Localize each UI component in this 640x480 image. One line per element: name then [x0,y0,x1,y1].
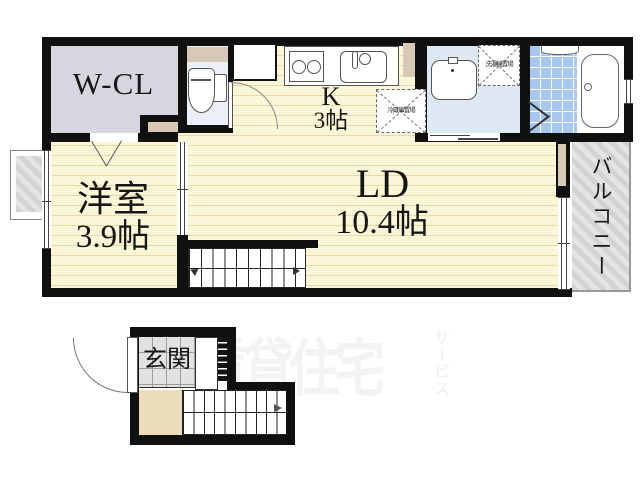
stairs-top-wall [188,240,318,248]
stairs-arrow-right [293,267,300,275]
stairs-dark-run [218,337,227,382]
lower-wall-top [130,327,236,337]
sink-faucet-lever [352,51,358,69]
kitchen-size: 3帖 [301,109,361,133]
lower-wall-bottom [130,435,295,445]
sliding-door-western-ld [177,142,188,235]
kitchen-label: K [301,83,361,110]
sink-faucet-icon [359,53,371,65]
wall-accent-toilet-top [187,47,228,62]
wall-accent-wcl [148,122,178,132]
ld-size: 10.4帖 [318,205,446,241]
bay-window-hatch [16,156,43,212]
wall-accent-ld-right [558,144,566,186]
toilet-seat-line [191,79,211,81]
lower-wall-mid [227,382,295,390]
bathroom-tiles [530,46,577,133]
window-bath-right [624,79,633,104]
wall-bath-left [520,37,530,142]
balcony-label: バルコニー [586,147,612,287]
window-ld-right [558,197,570,290]
stairs-lower-arrow [274,404,282,412]
wcl-label: W-CL [49,68,178,101]
washer-space: 洗濯機置場 [478,45,520,86]
kitchen-niche [232,43,277,81]
wall-wcl-right [178,37,187,133]
wall-western-ld-lower [177,235,188,288]
toilet-tank-icon [213,74,227,102]
stairs-lower [182,390,287,435]
bathtub-drain [584,83,592,91]
ld-label: LD [330,163,435,205]
toilet-icon [188,68,215,113]
stairs-upper [188,248,306,288]
wall-bottom [42,288,572,297]
western-room-size: 3.9帖 [49,220,177,255]
entrance-label: 玄関 [137,348,197,373]
wall-toilet-bottom [178,125,233,133]
bathtub-icon [581,54,619,128]
bath-shelf [541,46,579,55]
floor-plan-page: 賃貸住宅 サービス バルコニー W-CL [0,0,640,480]
washbasin-drain [451,69,454,72]
watermark-subtext: サービス [427,329,451,397]
entrance-landing [195,337,218,390]
stove-burner-right [307,60,321,74]
fridge-space: 冷蔵庫置場 [376,89,426,133]
lower-wall-right-upper [227,327,236,390]
entrance-door-arc [73,338,128,393]
wall-accent-kitchen [403,43,415,77]
washbasin-icon [431,60,477,100]
sliding-door-washroom [428,133,500,141]
western-room-label: 洋室 [49,181,177,219]
stove-burner-left [292,60,306,74]
wall-bath-bottom [520,133,633,142]
door-opening-wcl [90,133,138,142]
washbasin-faucet-icon [448,57,458,64]
stairs-landing-beige [139,390,182,435]
wall-top [42,37,633,46]
